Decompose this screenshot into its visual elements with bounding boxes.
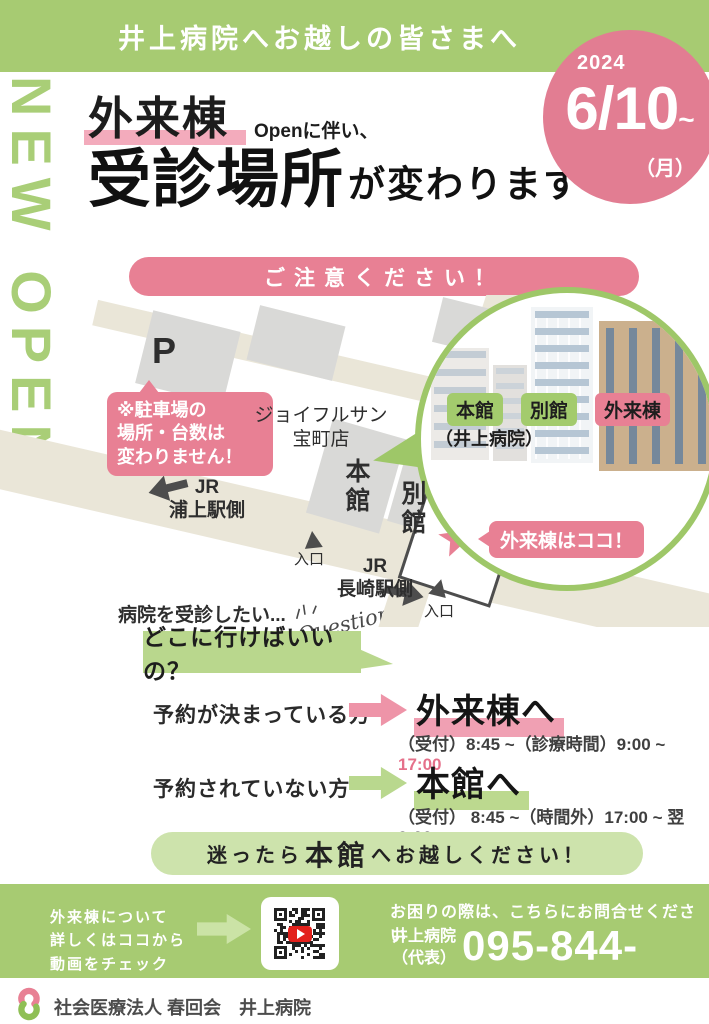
jr-urakami-label: JR 浦上駅側 <box>165 477 249 523</box>
if-lost-pre: 迷ったら <box>207 839 303 868</box>
entrance-label: 入口 <box>424 600 454 621</box>
guide-condition-with-appointment: 予約が決まっている方 <box>153 699 371 729</box>
start-date-year: 2024 <box>577 52 626 75</box>
title-open-note: Openに伴い、 <box>254 116 379 143</box>
flyer-poster: 井上病院へお越しの皆さまへ 2024 6/10~ （月） NEW OPEN 外来… <box>0 0 709 1024</box>
page-title-main: 受診場所 <box>88 146 344 215</box>
store-label: ジョイフルサン 宝町店 <box>248 404 394 452</box>
start-date-day: 6/10~ <box>555 74 705 143</box>
contact-org-sub: （代表） <box>392 950 456 967</box>
top-banner-text: 井上病院へお越しの皆さまへ <box>118 17 591 56</box>
title-outpatient-word: 外来棟 <box>88 82 229 147</box>
photo-hospital-label: （井上病院） <box>435 425 543 451</box>
qr-finder-icon <box>312 908 325 921</box>
contact-org-name: 井上病院 <box>392 928 456 945</box>
photo-badge-main: 本館 <box>447 393 503 426</box>
youtube-play-icon <box>288 926 312 942</box>
if-lost-strong: 本館 <box>303 834 371 874</box>
company-logo-icon <box>10 986 48 1022</box>
guide-condition-without-appointment: 予約されていない方 <box>153 773 350 803</box>
qr-finder-icon <box>274 946 287 959</box>
start-date-badge: 2024 6/10~ （月） <box>543 30 709 204</box>
jr-nagasaki-label: JR 長崎駅側 <box>328 556 422 602</box>
if-lost-banner: 迷ったら 本館 へお越しください！ <box>151 832 643 875</box>
guide-hours-text: （受付）8:45 ~（診療時間）9:00 ~ <box>398 735 665 754</box>
photo-badge-annex: 別館 <box>521 393 577 426</box>
start-date-day-number: 6/10 <box>565 75 678 142</box>
company-name: 社会医療法人 春回会 井上病院 <box>54 994 311 1020</box>
where-to-go-box: どこに行けばいいの？ <box>143 631 361 673</box>
start-date-weekday: （月） <box>635 152 695 181</box>
map-main-building-label: 本 館 <box>340 458 376 516</box>
video-note: 外来棟について 詳しくはココから 動画をチェック <box>50 906 186 976</box>
start-date-tilde: ~ <box>678 104 694 135</box>
map-annex-building-label: 別 館 <box>396 480 432 538</box>
phone-number: 095-844-1281 <box>462 922 709 1018</box>
qr-code <box>261 897 339 970</box>
photo-badge-outpatient: 外来棟 <box>595 393 670 426</box>
outpatient-here-callout: 外来棟はココ！ <box>489 521 644 558</box>
entrance-label: 入口 <box>294 548 324 569</box>
contact-org: 井上病院 （代表） <box>390 926 458 969</box>
page-title: 受診場所 が変わります <box>88 146 582 215</box>
if-lost-post: へお越しください！ <box>371 839 587 868</box>
page-title-tail: が変わります <box>344 154 582 215</box>
parking-mark: P <box>152 330 176 372</box>
qr-finder-icon <box>274 908 287 921</box>
